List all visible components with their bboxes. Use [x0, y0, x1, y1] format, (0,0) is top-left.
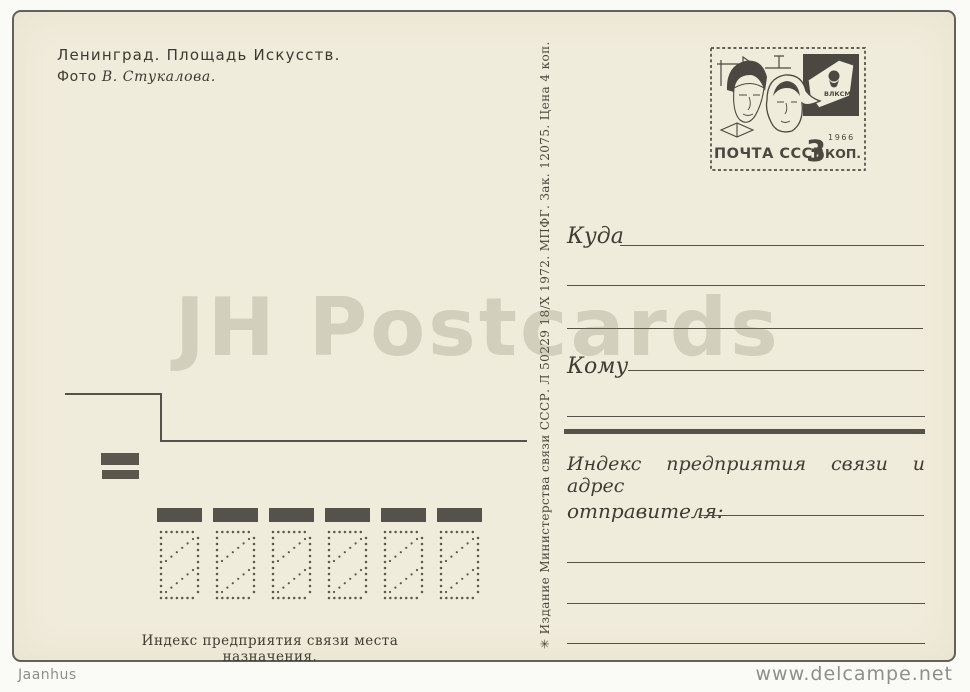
address-line	[620, 245, 924, 246]
seller-name: Jaanhus	[18, 667, 77, 683]
stamp-text: ПОЧТА СССР 3 1966 КОП.	[714, 133, 861, 168]
address-line	[628, 370, 924, 371]
step-rule-bottom	[160, 440, 527, 442]
index-cell	[269, 508, 314, 604]
photo-credit: Фото В. Стукалова.	[57, 69, 216, 85]
postcard-title: Ленинград. Площадь Искусств.	[57, 46, 341, 64]
address-line	[567, 643, 925, 644]
franking-bar	[101, 453, 139, 465]
photo-credit-author: В. Стукалова.	[102, 69, 216, 85]
digit-stencil-icon	[159, 530, 200, 600]
index-cell-bar	[437, 508, 482, 522]
site-url: www.delcampe.net	[755, 663, 953, 685]
address-line	[567, 416, 925, 417]
index-cell-bar	[213, 508, 258, 522]
index-cell-bar	[381, 508, 426, 522]
address-to-label: Куда	[567, 224, 624, 249]
index-cell	[325, 508, 370, 604]
franking-bar	[102, 470, 139, 479]
postage-stamp: ВЛКСМ ПОЧТА СССР 3	[707, 44, 869, 174]
stamp-year: 1966	[828, 133, 855, 142]
step-rule-top	[65, 393, 162, 395]
sender-index-label-line2: отправителя:	[567, 499, 724, 523]
digit-stencil-icon	[215, 530, 256, 600]
photo-credit-prefix: Фото	[57, 69, 97, 85]
index-cell-bar	[325, 508, 370, 522]
address-line	[567, 603, 925, 604]
index-cell	[437, 508, 482, 604]
address-name-label: Кому	[567, 354, 628, 379]
index-cell-bar	[269, 508, 314, 522]
index-caption: Индекс предприятия связи места назначени…	[114, 633, 426, 665]
index-cell-bar	[157, 508, 202, 522]
divider-bar	[564, 429, 925, 434]
digit-stencil-icon	[271, 530, 312, 600]
address-line	[567, 562, 925, 563]
book-icon	[721, 123, 753, 137]
postcard-back: Ленинград. Площадь Искусств. Фото В. Сту…	[12, 10, 956, 662]
step-rule-vertical	[160, 393, 162, 442]
stamp-unit: КОП.	[825, 146, 861, 161]
publisher-imprint: ✳ Издание Министерства связи СССР. Л 502…	[538, 79, 556, 649]
address-line	[700, 515, 924, 516]
index-cell	[213, 508, 258, 604]
stamp-badge-label: ВЛКСМ	[824, 90, 851, 98]
index-grid	[157, 508, 497, 604]
digit-stencil-icon	[439, 530, 480, 600]
address-line	[567, 328, 923, 329]
stamp-artwork: ВЛКСМ	[717, 54, 859, 137]
postcard-scan: Ленинград. Площадь Искусств. Фото В. Сту…	[0, 0, 970, 692]
address-line	[567, 285, 925, 286]
index-cell	[157, 508, 202, 604]
stamp-denomination: 3	[806, 134, 826, 168]
digit-stencil-icon	[327, 530, 368, 600]
sender-index-label-line1: Индекс предприятия связи и адрес	[567, 453, 925, 497]
man-face-icon	[727, 61, 767, 123]
index-cell	[381, 508, 426, 604]
digit-stencil-icon	[383, 530, 424, 600]
